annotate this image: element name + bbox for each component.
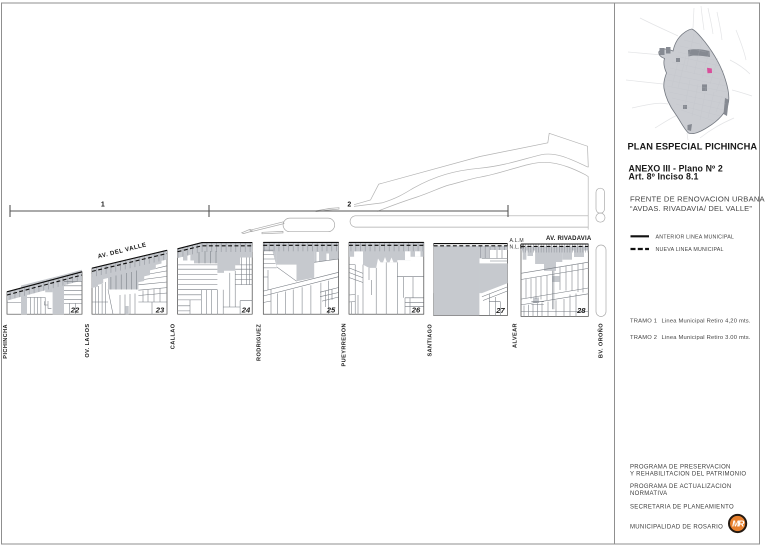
- svg-text:25: 25: [326, 306, 336, 315]
- svg-text:BV. OROÑO: BV. OROÑO: [598, 323, 605, 358]
- svg-text:Linea Municipal Retiro 3.00 mt: Linea Municipal Retiro 3.00 mts.: [662, 335, 751, 341]
- svg-text:NORMATIVA: NORMATIVA: [630, 491, 667, 497]
- svg-text:“AVDAS. RIVADAVIA/ DEL VALLE”: “AVDAS. RIVADAVIA/ DEL VALLE”: [630, 204, 752, 213]
- svg-text:TRAMO 1: TRAMO 1: [630, 319, 657, 325]
- svg-text:NUEVA LINEA MUNICIPAL: NUEVA LINEA MUNICIPAL: [656, 247, 724, 253]
- svg-text:FRENTE DE RENOVACION URBANA: FRENTE DE RENOVACION URBANA: [630, 195, 766, 204]
- svg-text:OV. LAGOS: OV. LAGOS: [85, 324, 91, 358]
- svg-text:N.L.M: N.L.M: [510, 244, 525, 250]
- svg-text:TRAMO 2: TRAMO 2: [630, 335, 657, 341]
- svg-text:AV. RIVADAVIA: AV. RIVADAVIA: [546, 236, 592, 242]
- svg-text:RODRIGUEZ: RODRIGUEZ: [257, 324, 263, 361]
- svg-text:PLAN ESPECIAL PICHINCHA: PLAN ESPECIAL PICHINCHA: [628, 142, 758, 152]
- svg-text:1: 1: [101, 201, 105, 208]
- svg-text:Y REHABILITACION DEL PATRIMONI: Y REHABILITACION DEL PATRIMONIO: [630, 472, 746, 478]
- svg-text:23: 23: [155, 305, 165, 314]
- svg-text:26: 26: [411, 306, 421, 315]
- svg-text:2: 2: [347, 201, 351, 208]
- svg-text:MUNICIPALIDAD DE ROSARIO: MUNICIPALIDAD DE ROSARIO: [630, 524, 723, 530]
- svg-text:PROGRAMA DE PRESERVACION: PROGRAMA DE PRESERVACION: [630, 465, 731, 471]
- svg-text:CALLAO: CALLAO: [171, 323, 177, 349]
- svg-text:SECRETARIA DE PLANEAMIENTO: SECRETARIA DE PLANEAMIENTO: [630, 505, 734, 511]
- svg-text:ALVEAR: ALVEAR: [513, 323, 519, 348]
- svg-text:Art. 8º Inciso 8.1: Art. 8º Inciso 8.1: [629, 171, 699, 181]
- svg-text:PROGRAMA DE ACTUALIZACION: PROGRAMA DE ACTUALIZACION: [630, 484, 732, 490]
- svg-text:28: 28: [576, 306, 586, 315]
- svg-text:SANTIAGO: SANTIAGO: [428, 324, 434, 357]
- svg-text:Linea Municipal Retiro 4,20 mt: Linea Municipal Retiro 4,20 mts.: [662, 319, 751, 325]
- svg-text:24: 24: [241, 306, 251, 315]
- svg-text:ANTERIOR LINEA MUNICIPAL: ANTERIOR LINEA MUNICIPAL: [656, 234, 735, 240]
- svg-text:27: 27: [495, 306, 505, 315]
- svg-text:A.L.M: A.L.M: [510, 238, 524, 244]
- svg-text:PUEYRREDON: PUEYRREDON: [342, 323, 348, 366]
- svg-text:22: 22: [70, 305, 80, 314]
- svg-text:PICHINCHA: PICHINCHA: [3, 324, 9, 359]
